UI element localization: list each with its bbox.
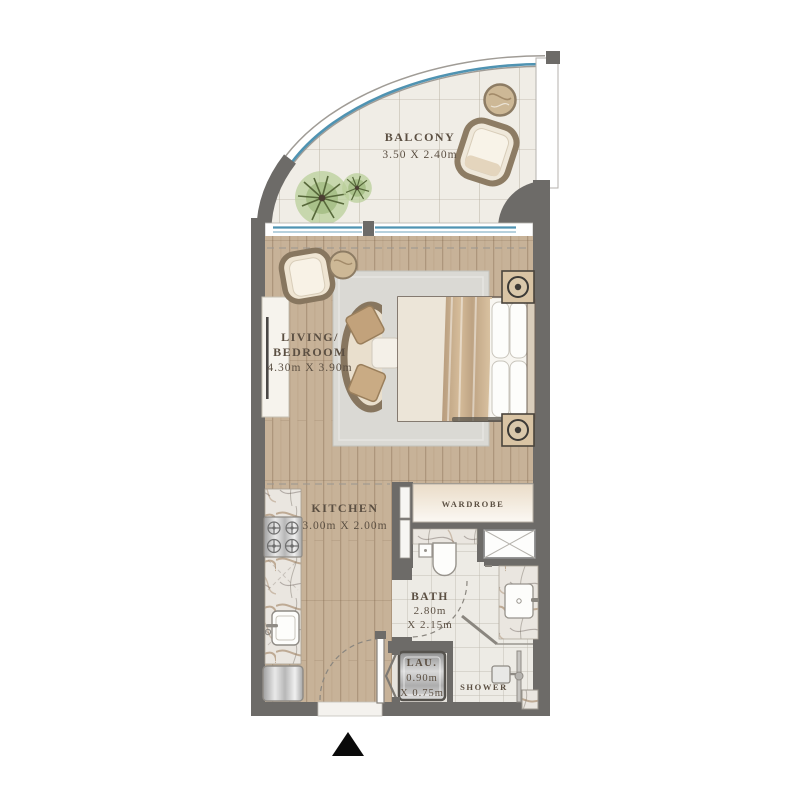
chair-side-table [372, 338, 400, 368]
entry-threshold [318, 702, 382, 716]
wardrobe-label: WARDROBE [442, 499, 505, 509]
wall-bottom-left [251, 702, 318, 716]
plant-icon-small [342, 173, 372, 203]
nightstand-top [502, 271, 534, 303]
wall-left [251, 218, 265, 716]
bath-dims-line2: X 2.15m [407, 619, 453, 631]
living-dims: 4.30m X 3.90m [267, 362, 352, 374]
bath-vanity [499, 566, 539, 639]
balcony-wall-cap [546, 51, 560, 64]
kitchen-dims: 3.00m X 2.00m [302, 520, 387, 532]
side-table [330, 252, 357, 279]
floor-plan-page: BALCONY 3.50 X 2.40m [0, 0, 800, 800]
headboard [527, 299, 535, 419]
entry-arrow-icon [332, 732, 364, 756]
plant-icon [295, 171, 349, 225]
balcony-room: BALCONY 3.50 X 2.40m [264, 51, 560, 230]
balcony-dims: 3.50 X 2.40m [382, 149, 457, 161]
bath-label: BATH [411, 591, 449, 603]
shower-marble-step [522, 690, 538, 709]
entry-door-leaf [377, 637, 384, 703]
balcony-right-mullion [536, 58, 558, 188]
wall-laundry-shower [447, 653, 453, 702]
kitchen-label: KITCHEN [311, 501, 378, 515]
laundry-dims-line2: X 0.75m [400, 688, 444, 699]
bifold-hinge-top [392, 649, 400, 655]
bath-sink-icon [505, 584, 533, 618]
bath-dims-line1: 2.80m [414, 605, 447, 617]
bed [398, 297, 535, 422]
laundry-label: LAU. [407, 658, 438, 669]
balcony-side-table [485, 85, 516, 116]
laundry-dims-line1: 0.90m [406, 673, 438, 684]
floor-plan: BALCONY 3.50 X 2.40m [0, 0, 800, 800]
living-label-line2: BEDROOM [273, 345, 347, 359]
wall-bath-door-jamb-top [392, 566, 412, 580]
shaft-box [484, 530, 535, 558]
kitchen-appliance [263, 666, 303, 701]
pillow [510, 302, 527, 358]
balcony-label: BALCONY [385, 130, 456, 144]
wardrobe: WARDROBE [413, 484, 533, 522]
pillow [492, 361, 509, 417]
entry-door-jamb [375, 631, 386, 639]
stove-icon [264, 517, 302, 557]
armchair [279, 248, 335, 304]
pillow [492, 302, 509, 358]
closet-panel-bottom [400, 520, 410, 558]
bifold-hinge-bottom [392, 697, 400, 703]
shower-label: SHOWER [460, 682, 508, 692]
pillow [510, 361, 527, 417]
round-lounge-chair [344, 301, 406, 413]
nightstand-bottom [502, 414, 534, 446]
bath-backsplash [413, 529, 477, 544]
closet-panel-top [400, 487, 410, 518]
living-label-line1: LIVING/ [281, 330, 339, 344]
